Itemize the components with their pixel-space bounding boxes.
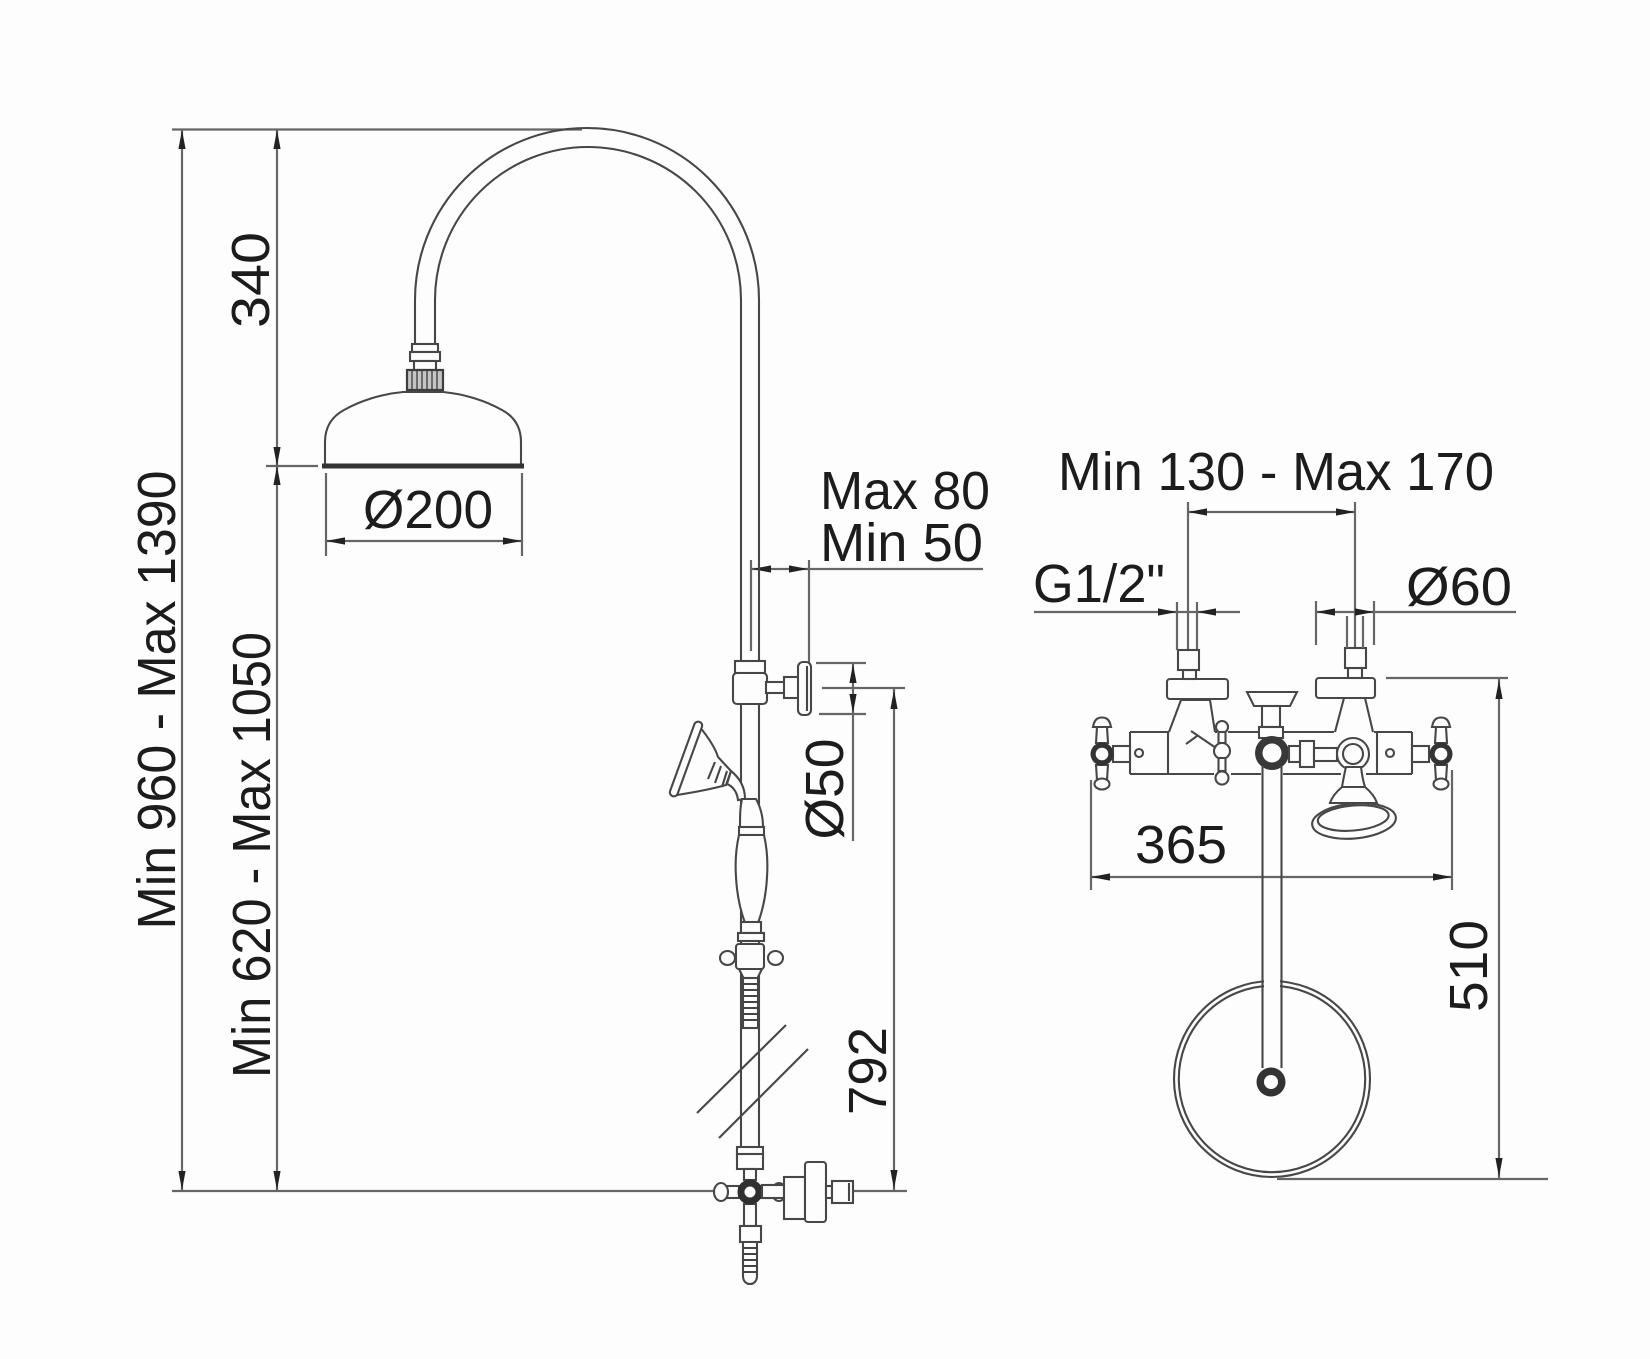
svg-text:Min 960 - Max 1390: Min 960 - Max 1390 <box>127 471 187 930</box>
svg-text:365: 365 <box>1135 815 1227 875</box>
svg-text:G1/2": G1/2" <box>1033 554 1165 614</box>
svg-text:Ø200: Ø200 <box>363 480 493 540</box>
svg-text:Min 620 - Max 1050: Min 620 - Max 1050 <box>222 632 282 1078</box>
svg-text:Max 80: Max 80 <box>820 461 990 521</box>
svg-text:Ø60: Ø60 <box>1406 557 1512 617</box>
svg-text:510: 510 <box>1439 920 1499 1012</box>
svg-text:Min 50: Min 50 <box>820 513 983 573</box>
svg-text:Ø50: Ø50 <box>795 739 855 840</box>
svg-text:Min 130 - Max 170: Min 130 - Max 170 <box>1058 442 1494 502</box>
svg-text:792: 792 <box>838 1027 898 1115</box>
svg-text:340: 340 <box>221 232 281 328</box>
